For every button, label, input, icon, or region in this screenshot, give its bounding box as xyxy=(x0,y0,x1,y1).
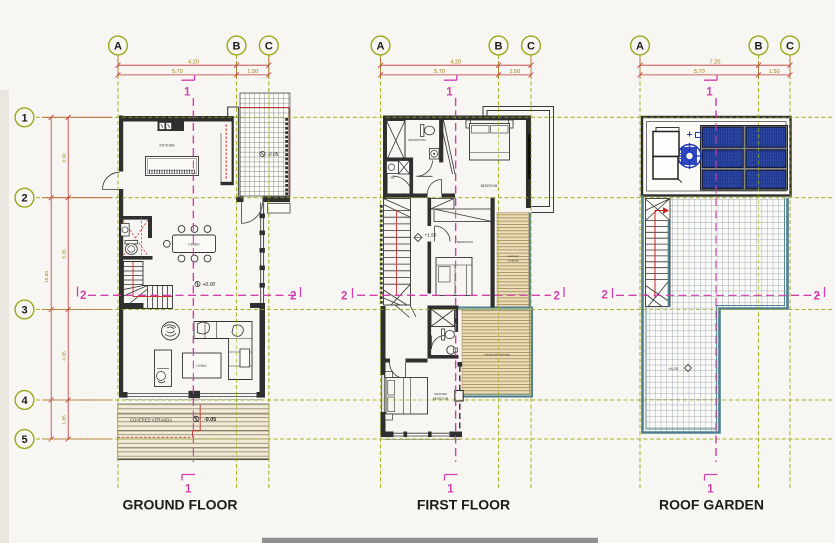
svg-text:A: A xyxy=(636,41,644,53)
svg-text:FIRST FLOOR: FIRST FLOOR xyxy=(417,497,510,513)
svg-text:1: 1 xyxy=(446,87,453,99)
svg-text:B: B xyxy=(755,41,763,53)
svg-text:1: 1 xyxy=(185,484,192,496)
svg-text:BEDROOM: BEDROOM xyxy=(481,184,498,188)
svg-text:veranda: veranda xyxy=(508,259,519,263)
svg-text:DINING: DINING xyxy=(188,243,200,247)
svg-text:1: 1 xyxy=(184,87,191,99)
svg-text:2: 2 xyxy=(80,290,86,302)
svg-text:C: C xyxy=(527,41,535,53)
svg-text:1: 1 xyxy=(21,112,27,124)
svg-text:KITCHEN: KITCHEN xyxy=(160,144,175,148)
svg-text:A: A xyxy=(377,41,385,53)
svg-text:7.20: 7.20 xyxy=(710,59,721,65)
svg-text:1: 1 xyxy=(447,484,454,496)
svg-text:2: 2 xyxy=(290,291,296,303)
svg-text:COVERED VERANDA: COVERED VERANDA xyxy=(130,418,172,423)
svg-text:1.50: 1.50 xyxy=(247,69,258,75)
svg-text:B: B xyxy=(233,41,241,53)
svg-text:2: 2 xyxy=(554,291,560,303)
svg-text:B: B xyxy=(495,41,503,53)
svg-text:BATHROOM: BATHROOM xyxy=(408,138,426,142)
svg-text:3.90: 3.90 xyxy=(61,153,67,163)
svg-text:C: C xyxy=(786,41,794,53)
svg-text:1: 1 xyxy=(707,484,714,496)
svg-text:3: 3 xyxy=(21,305,27,317)
svg-text:C: C xyxy=(265,41,273,53)
svg-text:1.50: 1.50 xyxy=(769,69,780,75)
svg-text:5.70: 5.70 xyxy=(434,69,445,75)
svg-text:+1.50: +1.50 xyxy=(425,233,437,238)
svg-text:4.35: 4.35 xyxy=(61,351,67,361)
svg-text:1.50: 1.50 xyxy=(509,69,520,75)
svg-text:2: 2 xyxy=(21,193,27,205)
svg-text:4: 4 xyxy=(21,395,28,407)
svg-text:+6.20: +6.20 xyxy=(668,366,679,371)
svg-text:5: 5 xyxy=(21,434,27,446)
svg-text:4.20: 4.20 xyxy=(450,59,461,65)
svg-text:1: 1 xyxy=(706,87,713,99)
svg-text:ROOF GARDEN: ROOF GARDEN xyxy=(659,497,764,513)
svg-text:4.20: 4.20 xyxy=(188,59,199,65)
svg-text:MASTER: MASTER xyxy=(434,392,447,396)
svg-text:GROUND FLOOR: GROUND FLOOR xyxy=(122,497,237,513)
svg-text:2: 2 xyxy=(341,291,347,303)
svg-text:1.85: 1.85 xyxy=(61,415,67,425)
svg-text:A: A xyxy=(114,41,122,53)
svg-text:BEDROOM: BEDROOM xyxy=(457,240,473,244)
svg-text:LIVING: LIVING xyxy=(196,364,207,368)
svg-text:2: 2 xyxy=(602,290,608,302)
svg-text:15.30: 15.30 xyxy=(44,271,50,283)
svg-text:2: 2 xyxy=(814,291,820,303)
svg-text:uncovered veranda: uncovered veranda xyxy=(484,353,510,357)
svg-text:covered: covered xyxy=(508,254,519,258)
svg-text:5.70: 5.70 xyxy=(172,69,183,75)
svg-text:-0.05: -0.05 xyxy=(204,417,216,423)
svg-text:5.35: 5.35 xyxy=(61,249,67,259)
svg-text:+0.00: +0.00 xyxy=(203,282,216,288)
svg-text:5.70: 5.70 xyxy=(694,69,705,75)
